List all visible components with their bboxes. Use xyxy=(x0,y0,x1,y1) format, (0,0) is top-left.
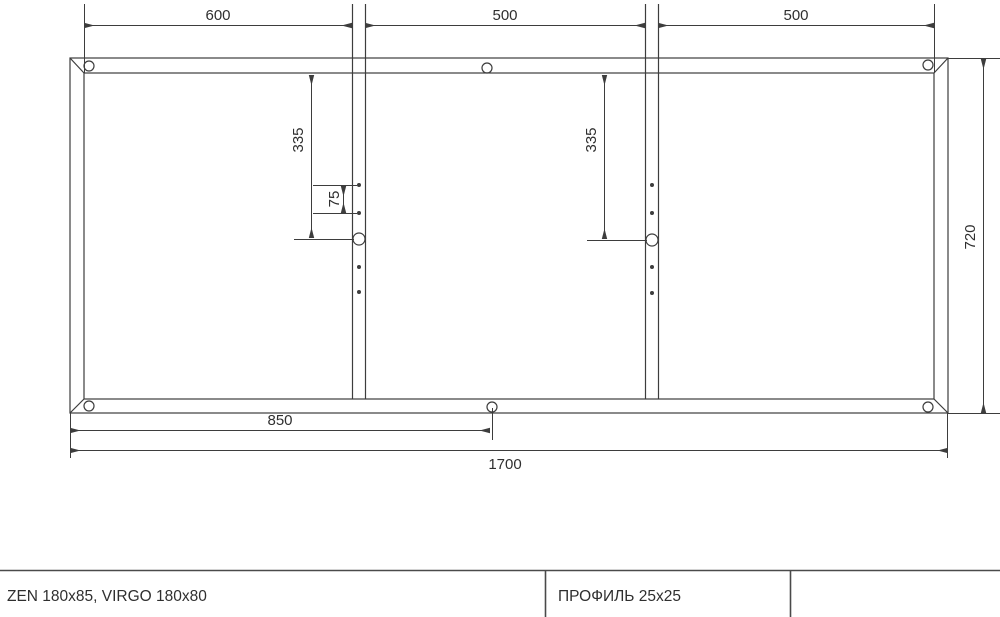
corner-hole-bottom-right xyxy=(923,402,933,412)
miter-joint-line-bottom-left xyxy=(70,399,84,413)
frame-drawing-canvas: 600 500 500 335 75 335 720 850 xyxy=(0,0,1000,617)
dimension-value: 335 xyxy=(290,127,307,152)
frame-body xyxy=(70,4,948,413)
model-list-label: ZEN 180x85, VIRGO 180x80 xyxy=(7,588,207,605)
pilot-hole-dot xyxy=(357,211,361,215)
miter-joint-line-bottom-right xyxy=(934,399,948,413)
dimension-1700: 1700 xyxy=(70,413,948,473)
title-block: ZEN 180x85, VIRGO 180x80 ПРОФИЛЬ 25x25 xyxy=(0,570,1000,617)
dimension-720: 720 xyxy=(948,59,1000,414)
miter-joint-line-top-right xyxy=(934,58,948,73)
frame-holes xyxy=(84,60,933,412)
dimension-top-600: 600 xyxy=(84,4,352,73)
top-center-hole xyxy=(482,63,492,73)
dimension-value: 500 xyxy=(492,7,517,24)
pilot-hole-dot xyxy=(357,265,361,269)
miter-joint-line-top-left xyxy=(70,58,84,73)
dimension-value: 600 xyxy=(205,7,230,24)
corner-hole-top-right xyxy=(923,60,933,70)
crossbar-left-hole xyxy=(353,233,365,245)
pilot-hole-dot xyxy=(357,290,361,294)
frame-inner-outline xyxy=(84,73,934,399)
dimension-335-middle: 335 xyxy=(583,75,647,241)
corner-hole-top-left xyxy=(84,61,94,71)
dimension-value: 75 xyxy=(326,191,343,208)
pilot-hole-dot xyxy=(650,183,654,187)
pilot-hole-dot xyxy=(650,265,654,269)
pilot-hole-dot xyxy=(650,291,654,295)
pilot-hole-dot xyxy=(650,211,654,215)
dimension-value: 335 xyxy=(583,127,600,152)
dimension-value: 850 xyxy=(267,412,292,429)
pilot-hole-dot xyxy=(357,183,361,187)
frame-outer-outline xyxy=(70,58,948,413)
dimension-75: 75 xyxy=(313,186,357,214)
profile-spec-label: ПРОФИЛЬ 25x25 xyxy=(558,588,681,605)
crossbar-right-hole xyxy=(646,234,658,246)
dimension-value: 500 xyxy=(783,7,808,24)
corner-hole-bottom-left xyxy=(84,401,94,411)
dimension-top-500-middle: 500 xyxy=(365,7,645,26)
dimension-value: 720 xyxy=(962,224,979,249)
dimension-335-left: 335 xyxy=(290,75,354,240)
dimension-top-500-right: 500 xyxy=(658,4,935,73)
dimension-value: 1700 xyxy=(488,456,521,473)
